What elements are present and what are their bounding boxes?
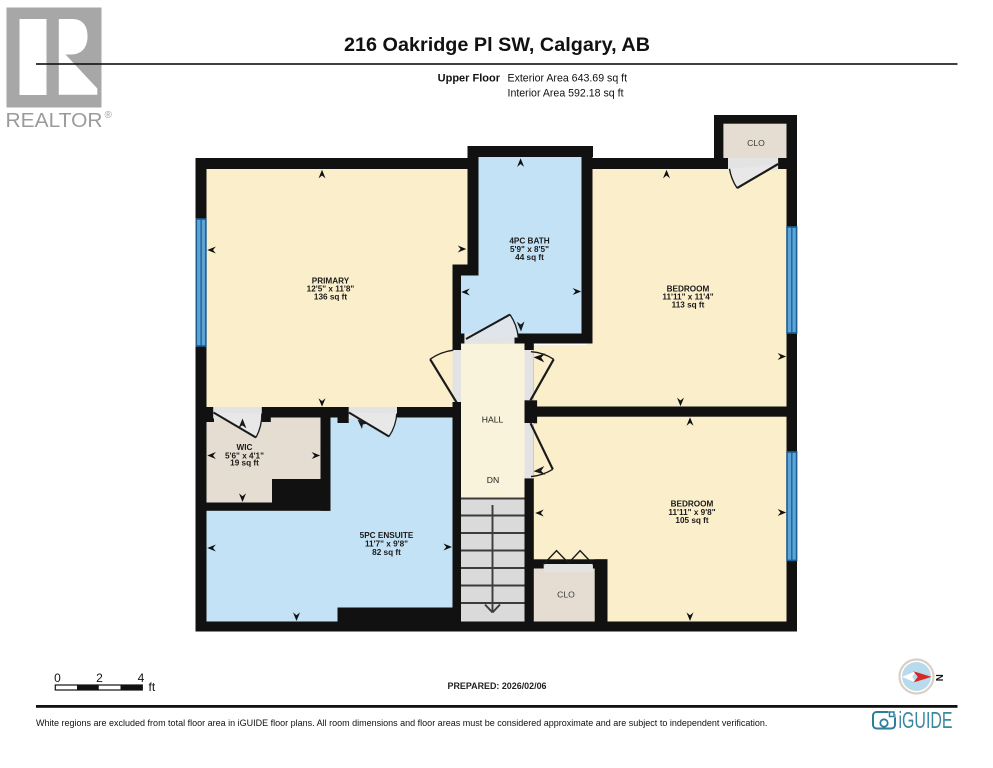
svg-text:0: 0 xyxy=(54,671,61,685)
svg-text:2: 2 xyxy=(96,671,103,685)
svg-text:105 sq ft: 105 sq ft xyxy=(675,516,708,525)
svg-text:Exterior Area 643.69 sq ft: Exterior Area 643.69 sq ft xyxy=(508,72,628,84)
svg-text:216 Oakridge Pl SW, Calgary, A: 216 Oakridge Pl SW, Calgary, AB xyxy=(344,34,650,56)
svg-text:CLO: CLO xyxy=(747,138,765,148)
svg-text:19 sq ft: 19 sq ft xyxy=(230,459,259,468)
svg-text:Upper Floor: Upper Floor xyxy=(438,72,501,84)
svg-text:113 sq ft: 113 sq ft xyxy=(672,301,705,310)
svg-text:iGUIDE: iGUIDE xyxy=(899,707,953,733)
svg-text:®: ® xyxy=(105,110,113,121)
svg-text:N: N xyxy=(933,674,944,681)
svg-text:82 sq ft: 82 sq ft xyxy=(372,548,401,557)
svg-text:White regions are excluded fro: White regions are excluded from total fl… xyxy=(36,718,767,728)
svg-text:Interior Area 592.18 sq ft: Interior Area 592.18 sq ft xyxy=(508,88,624,100)
svg-text:44 sq ft: 44 sq ft xyxy=(515,253,544,262)
svg-text:REALTOR: REALTOR xyxy=(6,109,103,132)
svg-text:CLO: CLO xyxy=(557,590,575,600)
svg-text:HALL: HALL xyxy=(482,415,504,425)
svg-text:PREPARED: 2026/02/06: PREPARED: 2026/02/06 xyxy=(448,681,547,692)
svg-text:4: 4 xyxy=(138,671,145,685)
svg-text:ft: ft xyxy=(149,680,156,694)
svg-text:DN: DN xyxy=(487,475,499,485)
svg-text:136 sq ft: 136 sq ft xyxy=(314,293,347,302)
